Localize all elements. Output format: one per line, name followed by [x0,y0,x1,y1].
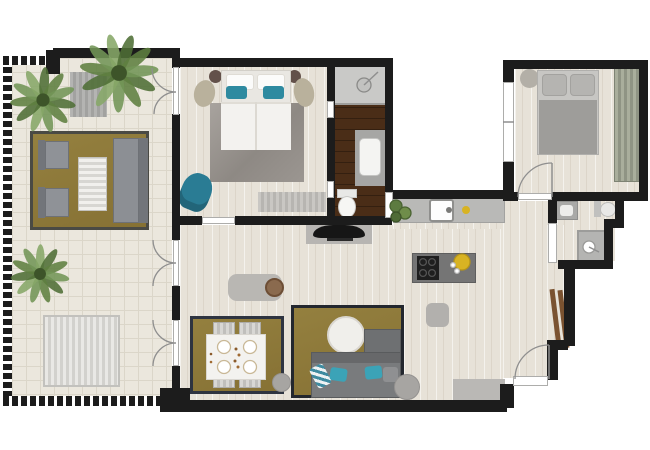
bedroom2-pillow-right [570,74,595,96]
terrace-armchair-2-seat [45,188,69,217]
wall-west-pier [172,286,180,320]
door-bedroom1 [202,217,235,224]
bathroom1-shower-floor [335,67,385,105]
wall-south-bedroom1-a [172,216,202,225]
sofa-pouf [394,374,420,400]
bedroom1-bench-mat [258,192,326,212]
wall-east-bedroom2 [639,60,648,201]
sofa-cushion-teal-2 [364,365,382,380]
wall-entry-east-a [564,266,575,346]
sofa-round-table [327,316,365,354]
door-bathroom1 [385,192,393,218]
dining-table [206,334,266,380]
kitchen-sink [429,199,454,222]
bathroom2-sink-basin [560,205,573,216]
french-door-2 [173,320,179,366]
terrace-sofa-seat [113,138,139,223]
bathroom2-toilet-bowl [600,202,616,217]
terrace-coffee-table [78,157,107,211]
wall-bathroom2-hall [548,199,557,223]
sofa-cushion-teal-1 [329,367,348,382]
terrace-sofa-back [139,138,148,223]
window-bedroom2 [503,82,514,162]
terrace-armchair-1-back [38,140,45,170]
door-bathroom2 [548,223,557,263]
niche-bathroom1-a [327,101,334,118]
wall-terrace-rail-bottom [3,396,166,406]
living-desk-stool [265,278,284,297]
wall-east-bathroom1 [385,58,393,192]
bedroom1-cushion-right [263,86,284,99]
wall-south-living [162,400,507,412]
living-tv-stand [327,238,353,241]
french-door-1 [173,240,179,286]
wall-south-bedroom1-b [235,216,392,225]
bedroom1-duvet-split [255,102,257,150]
bathroom1-toilet-bowl [338,196,356,218]
wall-terrace-top [53,48,180,58]
wall-south-bedroom2-b [552,192,648,201]
wall-north-bedroom1 [172,58,392,67]
bedroom2-wardrobe [614,62,640,182]
niche-bathroom1-b [327,181,334,198]
living-ottoman-square [426,303,449,327]
door-bedroom1-terrace [173,67,179,115]
apartment-floor-plan [0,0,650,450]
bedroom2-pillow-left [542,74,567,96]
wall-north-bedroom2 [503,60,648,69]
wall-north-kitchen [389,190,510,199]
terrace-sun-lounger [43,315,120,387]
entry-door-threshold [513,376,548,386]
living-tv [313,225,365,238]
entry-floor [503,225,547,378]
bedroom1-cushion-left [226,86,247,99]
wall-south-bedroom2-a [503,192,518,201]
door-bedroom2 [518,193,552,200]
bedroom2-blanket [539,100,597,154]
wall-entry-east-b [547,348,558,380]
bathroom1-basin [359,138,381,176]
terrace-armchair-1-seat [45,141,69,169]
terrace-armchair-2-back [38,187,45,218]
wall-terrace-rail-left [3,56,12,406]
terrace-ac-mat [70,72,107,117]
dining-pouf [272,373,291,392]
kitchen-cooktop [417,256,439,280]
